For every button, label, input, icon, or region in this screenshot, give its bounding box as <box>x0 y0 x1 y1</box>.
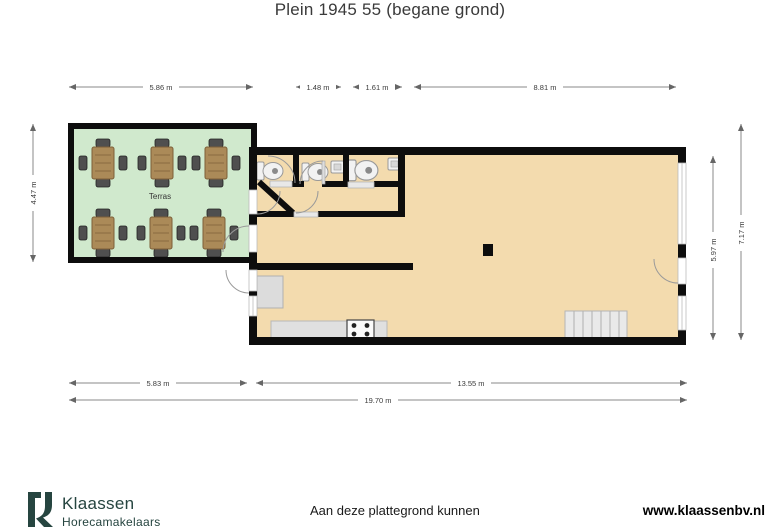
klaassen-logo-icon <box>27 491 57 527</box>
svg-text:13.55 m: 13.55 m <box>457 379 484 388</box>
terrace-label: Terras <box>149 192 171 201</box>
dimension-left-terrace: 4.47 m <box>28 124 38 262</box>
svg-text:8.81 m: 8.81 m <box>534 83 557 92</box>
svg-text:7.17 m: 7.17 m <box>737 222 746 245</box>
dimension-top-wc1: 1.48 m <box>296 82 341 92</box>
dimension-top-wc2: 1.61 m <box>353 82 402 92</box>
toilet-icon <box>348 160 378 181</box>
dimension-bottom-total: 19.70 m <box>69 395 687 405</box>
svg-text:4.47 m: 4.47 m <box>29 182 38 205</box>
column <box>483 244 493 256</box>
door-arc <box>226 270 249 293</box>
brand-subtitle: Horecamakelaars <box>62 515 161 529</box>
svg-text:19.70 m: 19.70 m <box>364 396 391 405</box>
toilet-icon <box>257 162 283 180</box>
svg-text:1.61 m: 1.61 m <box>366 83 389 92</box>
door-leaf <box>322 161 325 184</box>
svg-text:5.86 m: 5.86 m <box>150 83 173 92</box>
window <box>249 296 257 316</box>
stove <box>347 320 374 339</box>
door-opening <box>249 225 257 252</box>
cabinet <box>257 276 283 308</box>
door-opening <box>249 270 257 291</box>
sink-icon <box>331 161 344 173</box>
door-threshold <box>348 182 374 188</box>
dimension-right-inner: 5.97 m <box>708 156 718 340</box>
door-threshold <box>270 181 292 187</box>
svg-text:5.83 m: 5.83 m <box>147 379 170 388</box>
floor-plan: Terras <box>0 0 780 470</box>
website-link[interactable]: www.klaassenbv.nl <box>643 503 765 518</box>
door-opening <box>678 258 686 284</box>
dimension-bottom-right: 13.55 m <box>256 378 687 388</box>
brand-name: Klaassen <box>62 494 134 514</box>
window <box>678 163 686 244</box>
dimension-bottom-left: 5.83 m <box>69 378 247 388</box>
svg-text:1.48 m: 1.48 m <box>307 83 330 92</box>
dimension-top-main: 8.81 m <box>414 82 676 92</box>
door-opening <box>249 190 257 214</box>
window <box>678 296 686 330</box>
disclaimer-text: Aan deze plattegrond kunnen <box>310 503 480 518</box>
dimension-top-terrace: 5.86 m <box>69 82 253 92</box>
svg-text:5.97 m: 5.97 m <box>709 239 718 262</box>
dimension-right-outer: 7.17 m <box>736 124 746 340</box>
